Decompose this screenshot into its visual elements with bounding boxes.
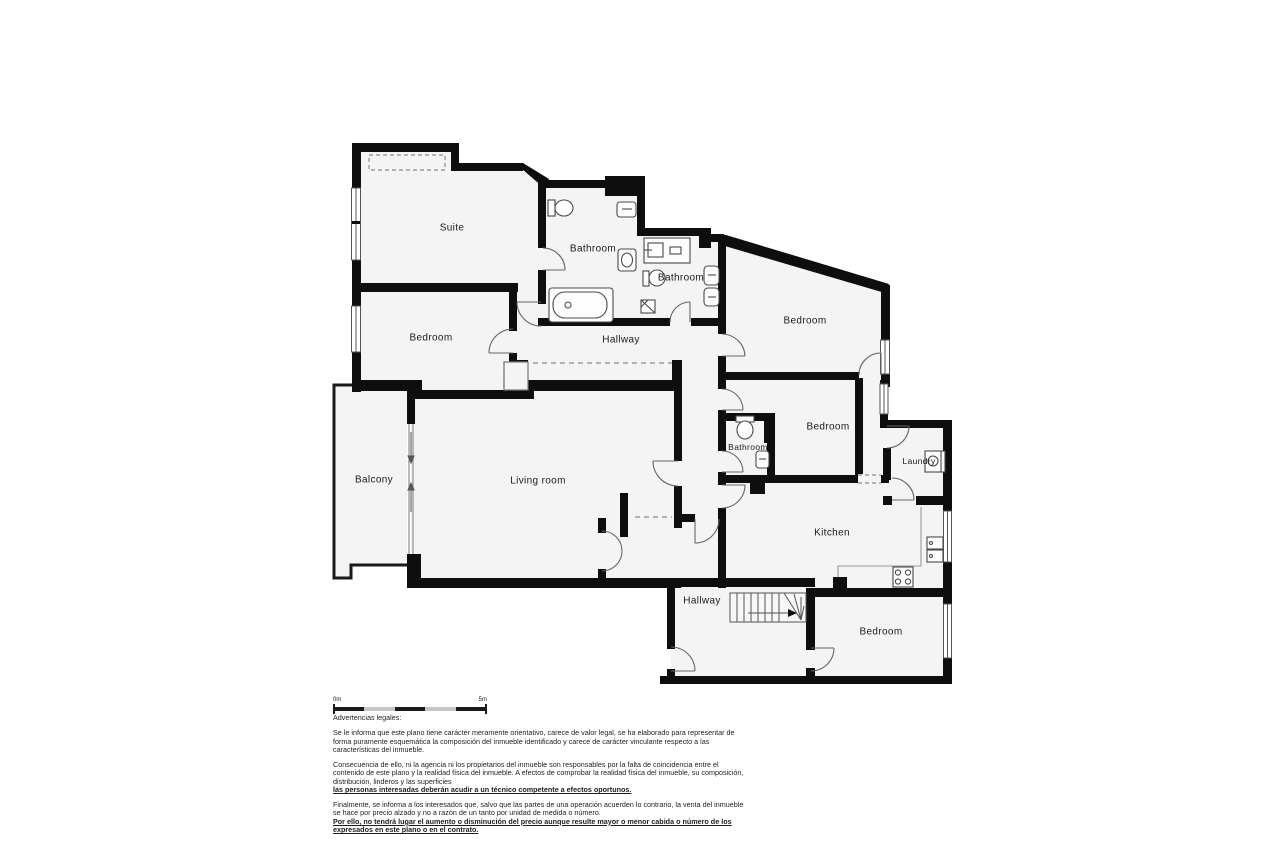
legal-title: Advertencias legales: <box>333 714 747 722</box>
legal-paragraph-2-bold: las personas interesadas deberán acudir … <box>333 786 747 794</box>
kitchen-sink-icon <box>927 537 943 562</box>
room-label-living-room: Living room <box>510 476 566 487</box>
radiator-icon <box>641 300 655 313</box>
sink-icon <box>756 451 769 468</box>
room-label-hallway-lower: Hallway <box>683 596 720 607</box>
bathtub-icon <box>549 288 613 322</box>
room-label-bathroom-3: Bathroom <box>728 442 768 452</box>
sink-icon <box>704 266 719 285</box>
sink-icon <box>618 249 636 271</box>
toilet-icon <box>548 200 573 216</box>
room-label-bathroom-1: Bathroom <box>570 244 616 255</box>
scale-end-label: 5m <box>479 697 487 703</box>
legal-notices: Advertencias legales: Se le informa que … <box>333 714 747 841</box>
legal-paragraph-2: Consecuencia de ello, ni la agencia ni l… <box>333 761 747 795</box>
room-label-balcony: Balcony <box>355 475 393 486</box>
vanity-icon <box>644 238 690 263</box>
room-label-hallway-upper: Hallway <box>602 335 639 346</box>
legal-paragraph-3: Finalmente, se informa a los interesados… <box>333 801 747 835</box>
scale-start-label: 0m <box>333 697 341 703</box>
legal-paragraph-2-text: Consecuencia de ello, ni la agencia ni l… <box>333 760 743 786</box>
room-label-laundry: Laundry <box>902 456 935 466</box>
toilet-icon <box>736 416 754 439</box>
room-label-bedroom-bottom: Bedroom <box>859 627 902 638</box>
room-label-bedroom-top-right: Bedroom <box>783 316 826 327</box>
sink-icon <box>617 202 636 217</box>
room-label-suite: Suite <box>440 223 465 234</box>
scale-track <box>333 707 487 711</box>
sink-icon <box>704 288 719 306</box>
stairs-icon <box>730 593 806 622</box>
room-label-bedroom-middle: Bedroom <box>806 422 849 433</box>
scale-bar: 0m 5m <box>333 699 487 713</box>
legal-paragraph-3-bold: Por ello, no tendrá lugar el aumento o d… <box>333 818 747 835</box>
room-label-bedroom-left: Bedroom <box>409 333 452 344</box>
legal-paragraph-3-text: Finalmente, se informa a los interesados… <box>333 800 743 817</box>
floorplan-page: Suite Bathroom Bathroom Bedroom Hallway … <box>0 0 1280 853</box>
stove-icon <box>893 567 913 587</box>
room-label-bathroom-2: Bathroom <box>658 273 704 284</box>
room-label-kitchen: Kitchen <box>814 528 850 539</box>
legal-paragraph-1: Se le informa que este plano tiene carác… <box>333 729 747 754</box>
